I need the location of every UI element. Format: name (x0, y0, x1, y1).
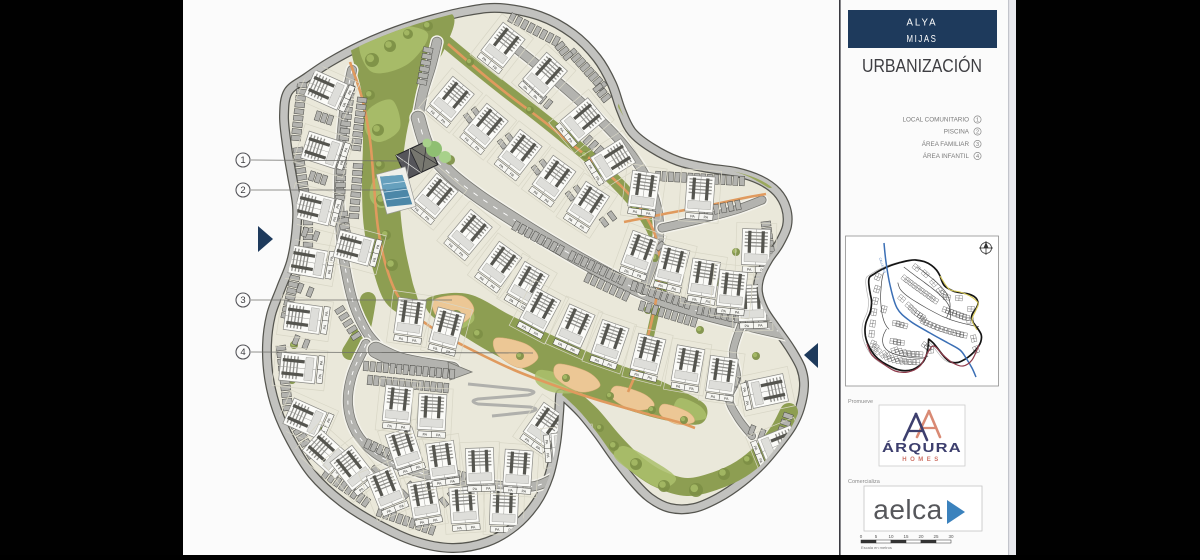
svg-text:25: 25 (933, 534, 939, 539)
svg-text:20: 20 (918, 534, 924, 539)
svg-text:1: 1 (240, 155, 245, 166)
svg-text:PISCINA: PISCINA (944, 129, 970, 136)
svg-text:ÁREA INFANTIL: ÁREA INFANTIL (923, 151, 970, 160)
svg-text:10: 10 (888, 534, 894, 539)
svg-text:3: 3 (240, 295, 245, 306)
svg-text:HOMES: HOMES (902, 457, 942, 463)
svg-text:MIJAS: MIJAS (907, 34, 938, 45)
svg-text:3: 3 (976, 142, 979, 148)
svg-text:PA: PA (495, 528, 500, 532)
svg-text:ALYA: ALYA (907, 18, 938, 29)
svg-text:30: 30 (948, 534, 954, 539)
svg-text:PA: PA (758, 324, 763, 328)
svg-text:aelca: aelca (873, 494, 942, 525)
svg-text:2: 2 (240, 185, 245, 196)
svg-text:PA: PA (744, 324, 749, 328)
svg-text:PA: PA (436, 433, 441, 437)
svg-text:1: 1 (976, 118, 979, 124)
svg-text:ÁREA FAMILIAR: ÁREA FAMILIAR (922, 139, 970, 148)
svg-text:4: 4 (240, 347, 245, 358)
svg-text:2: 2 (976, 130, 979, 136)
svg-text:ÁRQURA: ÁRQURA (882, 440, 962, 455)
svg-text:URBANIZACIÓN: URBANIZACIÓN (862, 55, 982, 76)
svg-text:PA: PA (486, 487, 491, 491)
svg-text:PA: PA (747, 268, 752, 272)
svg-text:PA: PA (472, 487, 477, 491)
svg-text:Escala en metros: Escala en metros (861, 545, 892, 550)
svg-text:4: 4 (976, 154, 979, 160)
svg-text:Promueve: Promueve (848, 399, 873, 405)
svg-text:Comercializa: Comercializa (848, 479, 881, 485)
svg-text:LOCAL COMUNITARIO: LOCAL COMUNITARIO (903, 117, 970, 124)
svg-text:15: 15 (903, 534, 909, 539)
svg-text:PA: PA (422, 433, 427, 437)
